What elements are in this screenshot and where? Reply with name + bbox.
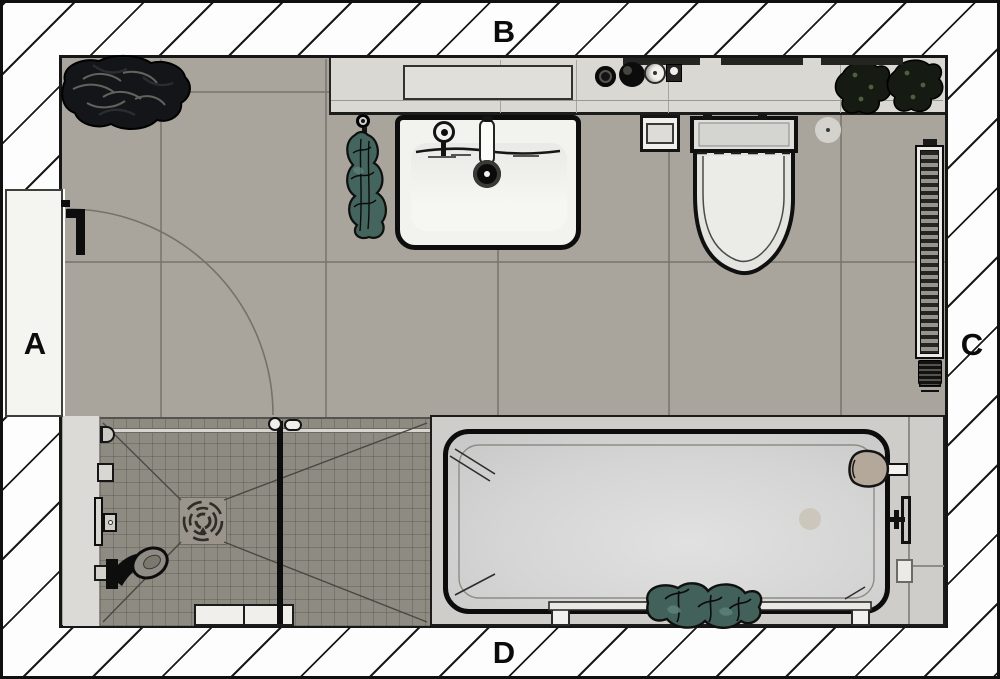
tub-soap-dish bbox=[896, 559, 913, 583]
tray-square-dot bbox=[670, 67, 678, 75]
towel-rod-knob bbox=[356, 114, 370, 128]
counter-seam bbox=[840, 60, 841, 113]
faucet-cap bbox=[482, 116, 493, 122]
partition-knob bbox=[268, 417, 282, 431]
bathtub-basin bbox=[443, 429, 890, 614]
counter-seam bbox=[576, 60, 577, 113]
wall-label-a: A bbox=[24, 326, 46, 362]
wall-label-b: B bbox=[493, 14, 515, 50]
counter-front-edge bbox=[331, 100, 943, 101]
shower-glass-top-edge bbox=[100, 428, 430, 433]
wall-mirror-strip bbox=[721, 58, 803, 65]
sink-drain-dot bbox=[484, 171, 490, 177]
towel-rod bbox=[362, 122, 367, 238]
jar-small-icon bbox=[595, 66, 616, 87]
counter-recessed-tray bbox=[403, 65, 573, 100]
radiator-cap bbox=[923, 139, 937, 145]
flush-plate-dot bbox=[826, 128, 830, 132]
toilet-paper-roll bbox=[646, 123, 674, 144]
tile-joint-horizontal bbox=[62, 261, 945, 263]
shower-bench-divider bbox=[243, 606, 245, 624]
radiator-valve bbox=[918, 360, 942, 386]
door-hinge-mark bbox=[61, 200, 70, 207]
shower-floor bbox=[100, 417, 430, 626]
shower-valve-box bbox=[97, 463, 114, 482]
jar-highlight bbox=[623, 66, 632, 75]
faucet bbox=[479, 119, 495, 165]
partition-knob bbox=[284, 419, 302, 431]
bathroom-floor-plan: A B C D bbox=[0, 0, 1000, 679]
shower-mixer-dot bbox=[108, 520, 113, 525]
soap-dish-dot bbox=[653, 71, 657, 75]
shower-mixer-bar bbox=[94, 497, 103, 546]
pop-up-control-dot bbox=[441, 129, 448, 136]
jar-large-icon bbox=[619, 62, 645, 87]
door-handle bbox=[76, 216, 85, 255]
towel-radiator bbox=[915, 145, 944, 359]
entry-door-leaf bbox=[5, 189, 63, 417]
radiator-rungs bbox=[920, 150, 939, 354]
pop-up-control-stem bbox=[441, 142, 446, 156]
tub-cross-handle bbox=[894, 510, 899, 529]
wall-mirror-strip bbox=[821, 58, 903, 65]
shower-glass-partition bbox=[277, 421, 283, 624]
tub-deck-seam bbox=[909, 565, 944, 567]
wall-label-d: D bbox=[493, 635, 515, 671]
shower-drain-pad bbox=[179, 497, 227, 545]
wall-label-c: C bbox=[961, 327, 983, 363]
